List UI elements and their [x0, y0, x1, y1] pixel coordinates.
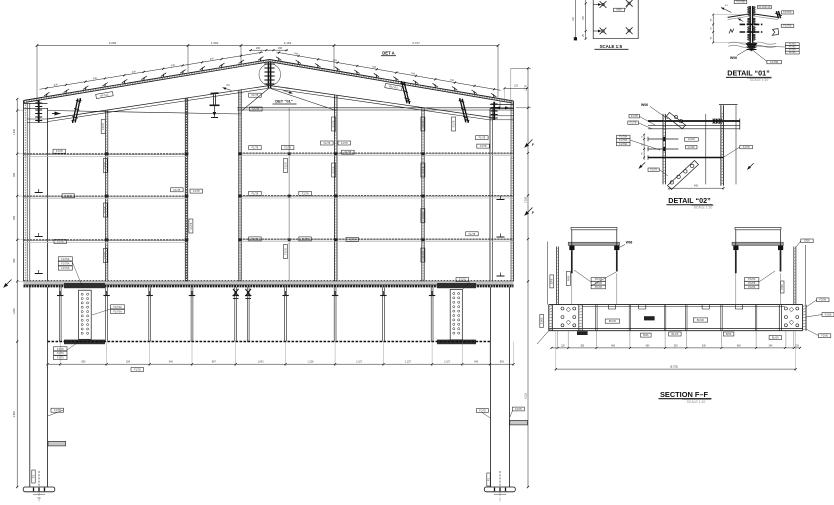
svg-text:SCALE 1:10: SCALE 1:10: [750, 78, 769, 82]
svg-text:F1/78: F1/78: [283, 162, 287, 169]
svg-text:F1/78: F1/78: [650, 167, 657, 171]
svg-text:F1/79: F1/79: [57, 356, 64, 360]
svg-text:F1/78: F1/78: [451, 120, 455, 127]
svg-text:F1/78: F1/78: [252, 107, 259, 111]
svg-text:7,250: 7,250: [524, 196, 527, 203]
svg-text:DETAIL “01”: DETAIL “01”: [727, 69, 770, 78]
svg-text:F1/78: F1/78: [252, 191, 259, 195]
svg-text:F1/78: F1/78: [341, 141, 348, 145]
svg-text:F1/78: F1/78: [302, 191, 309, 195]
svg-text:PC/06: PC/06: [748, 285, 756, 289]
svg-text:940: 940: [169, 361, 174, 364]
svg-text:P1: P1: [31, 474, 35, 478]
svg-text:1,302: 1,302: [211, 41, 219, 45]
svg-text:F1/78D: F1/78D: [789, 52, 796, 54]
svg-text:1,107: 1,107: [405, 361, 412, 364]
svg-text:900: 900: [13, 215, 16, 220]
svg-text:P/06: P/06: [566, 275, 570, 281]
svg-text:1,107: 1,107: [356, 361, 363, 364]
svg-text:F1/78: F1/78: [421, 212, 425, 219]
svg-text:F2/06: F2/06: [825, 312, 832, 316]
svg-text:F: F: [532, 143, 534, 147]
svg-text:F1/78D: F1/78D: [789, 46, 796, 48]
svg-text:F1/79A: F1/79A: [61, 257, 70, 261]
svg-text:F1/78: F1/78: [332, 120, 336, 127]
svg-text:F1/78C: F1/78C: [783, 10, 792, 14]
svg-text:F1/78: F1/78: [515, 407, 522, 411]
svg-text:F1/79: F1/79: [57, 351, 64, 355]
svg-text:1,300: 1,300: [13, 129, 16, 136]
svg-text:G/102: G/102: [688, 145, 696, 149]
svg-text:W06: W06: [641, 103, 648, 107]
svg-text:F1/79A: F1/79A: [61, 262, 70, 266]
svg-text:BC/06: BC/06: [697, 318, 705, 322]
svg-text:F2/06: F2/06: [821, 334, 828, 338]
svg-text:F1/79A: F1/79A: [61, 266, 70, 270]
svg-text:PL150x10: PL150x10: [759, 5, 771, 9]
svg-text:(5,752): (5,752): [670, 364, 678, 368]
svg-text:F1/78: F1/78: [332, 166, 336, 173]
svg-text:F2/06: F2/06: [819, 298, 826, 302]
svg-text:F1/78: F1/78: [134, 368, 141, 372]
svg-text:F1/78: F1/78: [324, 141, 331, 145]
svg-text:F1/78: F1/78: [252, 93, 259, 97]
svg-text:P/06: P/06: [780, 284, 784, 290]
svg-text:F1/78: F1/78: [283, 248, 287, 255]
svg-text:F1/78: F1/78: [189, 222, 193, 229]
svg-text:F1/78E: F1/78E: [770, 60, 779, 64]
svg-text:2,747: 2,747: [412, 41, 420, 45]
svg-text:F1/78D: F1/78D: [789, 49, 796, 51]
svg-text:295: 295: [256, 47, 261, 50]
svg-text:B/06: B/06: [726, 332, 732, 336]
svg-text:2,950: 2,950: [13, 411, 16, 418]
svg-text:F1/78: F1/78: [65, 194, 72, 198]
svg-text:F1/78: F1/78: [54, 408, 61, 412]
svg-text:F1/78: F1/78: [349, 237, 356, 241]
svg-text:546: 546: [474, 361, 479, 364]
svg-text:PC/06: PC/06: [748, 281, 756, 285]
svg-text:F1/79A: F1/79A: [113, 305, 122, 309]
svg-text:1,107: 1,107: [444, 361, 451, 364]
svg-text:3,096: 3,096: [109, 41, 117, 45]
svg-text:534: 534: [126, 361, 131, 364]
svg-text:F1/78A: F1/78A: [619, 135, 628, 139]
svg-text:F1/78: F1/78: [284, 146, 291, 150]
svg-text:DETAIL “02”: DETAIL “02”: [668, 196, 711, 205]
svg-text:900: 900: [13, 258, 16, 263]
svg-text:1,719: 1,719: [524, 84, 527, 91]
svg-text:F1/78A: F1/78A: [619, 138, 628, 142]
svg-text:F1/78: F1/78: [173, 188, 180, 192]
svg-text:800: 800: [500, 361, 505, 364]
svg-text:F1/79: F1/79: [57, 347, 64, 351]
svg-text:F1/78: F1/78: [252, 146, 259, 150]
svg-text:F1/78: F1/78: [480, 144, 487, 148]
svg-text:400: 400: [694, 185, 699, 188]
svg-text:295: 295: [278, 47, 283, 50]
svg-text:900: 900: [13, 172, 16, 177]
svg-text:F1/78B: F1/78B: [736, 0, 745, 4]
svg-text:F: F: [532, 211, 534, 215]
svg-text:1,126: 1,126: [307, 361, 314, 364]
svg-text:F1/78: F1/78: [459, 278, 466, 282]
svg-text:PC/06: PC/06: [595, 285, 603, 289]
svg-text:F1/78: F1/78: [56, 149, 63, 153]
svg-text:F1/78: F1/78: [631, 114, 638, 118]
svg-text:F1/78C: F1/78C: [783, 23, 792, 27]
svg-text:W06: W06: [626, 241, 633, 245]
svg-text:F1/78: F1/78: [743, 145, 750, 149]
svg-text:F1/78: F1/78: [252, 237, 259, 241]
svg-text:SCALE 1:10: SCALE 1:10: [687, 400, 706, 404]
svg-text:F1/78: F1/78: [103, 252, 107, 259]
svg-text:PC/06: PC/06: [595, 277, 603, 281]
svg-text:F1/78: F1/78: [421, 251, 425, 258]
svg-text:F1/78A: F1/78A: [619, 142, 628, 146]
svg-text:F1/78: F1/78: [421, 120, 425, 127]
svg-text:F1/78: F1/78: [479, 136, 486, 140]
svg-text:850: 850: [81, 361, 86, 364]
svg-text:DET “01”: DET “01”: [275, 99, 293, 104]
svg-text:F1/78: F1/78: [193, 189, 200, 193]
svg-text:E1/06: E1/06: [540, 317, 544, 324]
svg-text:E/06: E/06: [550, 278, 554, 284]
svg-text:BL/06: BL/06: [772, 336, 779, 340]
svg-text:F1/78: F1/78: [345, 150, 352, 154]
svg-text:4%: 4%: [725, 5, 728, 7]
svg-text:F1/78: F1/78: [469, 232, 476, 236]
svg-text:F1/78D: F1/78D: [789, 44, 796, 46]
svg-text:1,042: 1,042: [258, 361, 265, 364]
svg-text:987: 987: [212, 361, 217, 364]
svg-text:PC/06: PC/06: [748, 277, 756, 281]
svg-text:F1/79A: F1/79A: [113, 310, 122, 314]
svg-text:BL/06: BL/06: [672, 332, 679, 336]
svg-text:F1/78: F1/78: [302, 237, 309, 241]
svg-text:M20: M20: [616, 8, 622, 12]
svg-text:G/102: G/102: [688, 137, 696, 141]
svg-text:E/06: E/06: [804, 239, 810, 243]
svg-text:F1/78: F1/78: [103, 162, 107, 169]
svg-text:F1/78: F1/78: [101, 123, 105, 130]
svg-text:DET A: DET A: [382, 51, 394, 56]
svg-text:4,118: 4,118: [524, 392, 527, 398]
svg-text:2,162: 2,162: [284, 41, 292, 45]
svg-text:F1/78: F1/78: [57, 240, 64, 244]
svg-text:P1: P1: [486, 477, 490, 481]
svg-text:F1/78: F1/78: [421, 166, 425, 173]
svg-text:SECTION F–F: SECTION F–F: [660, 390, 709, 399]
svg-text:W06: W06: [730, 56, 737, 60]
svg-text:1,800: 1,800: [13, 308, 16, 315]
svg-text:F1/78: F1/78: [630, 120, 637, 124]
svg-text:F1/78: F1/78: [103, 206, 107, 213]
svg-text:BC/06: BC/06: [609, 319, 617, 323]
svg-text:F1/78: F1/78: [479, 408, 486, 412]
svg-text:B/06: B/06: [643, 333, 649, 337]
svg-text:SCALE 1:5: SCALE 1:5: [600, 44, 623, 49]
svg-text:SCALE 1:10: SCALE 1:10: [694, 206, 713, 210]
